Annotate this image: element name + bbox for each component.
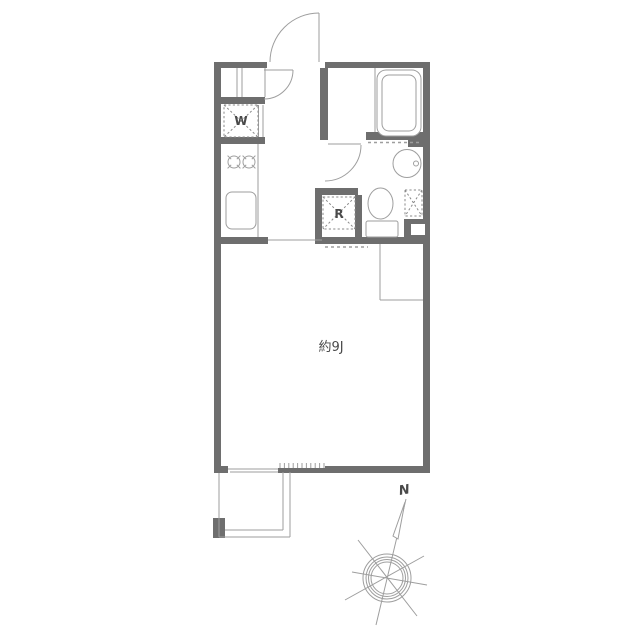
wall-mainroom-band bbox=[322, 237, 430, 244]
side-storage-space bbox=[405, 190, 422, 216]
wall-top-left bbox=[214, 62, 267, 68]
wall-kitchen-band bbox=[214, 237, 268, 244]
entrance-door-swing bbox=[270, 13, 319, 62]
stove-burner-left-ticks bbox=[228, 156, 241, 169]
side-storage-x bbox=[405, 190, 422, 216]
closet-door-swing bbox=[264, 70, 293, 99]
compass-needle bbox=[393, 502, 405, 539]
closet-shelf-lines bbox=[237, 68, 242, 97]
wall-washroom-corner-stub bbox=[408, 140, 430, 147]
refrigerator-label: R bbox=[334, 207, 343, 221]
wall-laundry-bottom bbox=[220, 137, 265, 144]
wall-hall-bathroom bbox=[320, 68, 328, 140]
wall-bottom-right bbox=[325, 466, 430, 473]
compass-north-label: N bbox=[398, 482, 411, 499]
toilet-bowl bbox=[368, 188, 393, 219]
window-bottom bbox=[278, 463, 325, 473]
floor-plan-drawing: N W R 約9J bbox=[0, 0, 640, 640]
washroom-door-swing bbox=[325, 145, 361, 181]
window-sill-bar bbox=[278, 468, 325, 473]
laundry-closet-front-lines bbox=[259, 105, 264, 137]
window-hatch-ticks bbox=[280, 463, 324, 468]
wall-left bbox=[214, 62, 221, 473]
wall-fridge-right-stub bbox=[355, 195, 362, 238]
pipe-space-inner bbox=[411, 224, 425, 235]
floor-plan: N W R 約9J bbox=[0, 0, 640, 640]
kitchen-sink bbox=[226, 192, 256, 229]
bathtub-outer bbox=[377, 70, 421, 136]
balcony bbox=[219, 472, 290, 537]
toilet-tank bbox=[366, 221, 398, 237]
mainroom-nook-lines bbox=[380, 244, 423, 300]
wash-basin bbox=[393, 150, 421, 178]
compass: N bbox=[345, 482, 427, 625]
wall-bottom-left-stub bbox=[214, 466, 228, 473]
wall-right bbox=[423, 62, 430, 473]
wall-top-right bbox=[325, 62, 430, 68]
washing-machine-label: W bbox=[234, 114, 247, 128]
stove-burner-right-ticks bbox=[243, 156, 256, 169]
labels: W R 約9J bbox=[234, 114, 343, 355]
balcony-outline bbox=[219, 472, 290, 537]
wall-fridge-left bbox=[315, 188, 322, 244]
main-room-size-label: 約9J bbox=[318, 340, 343, 355]
wall-closet-bottom bbox=[220, 97, 265, 104]
